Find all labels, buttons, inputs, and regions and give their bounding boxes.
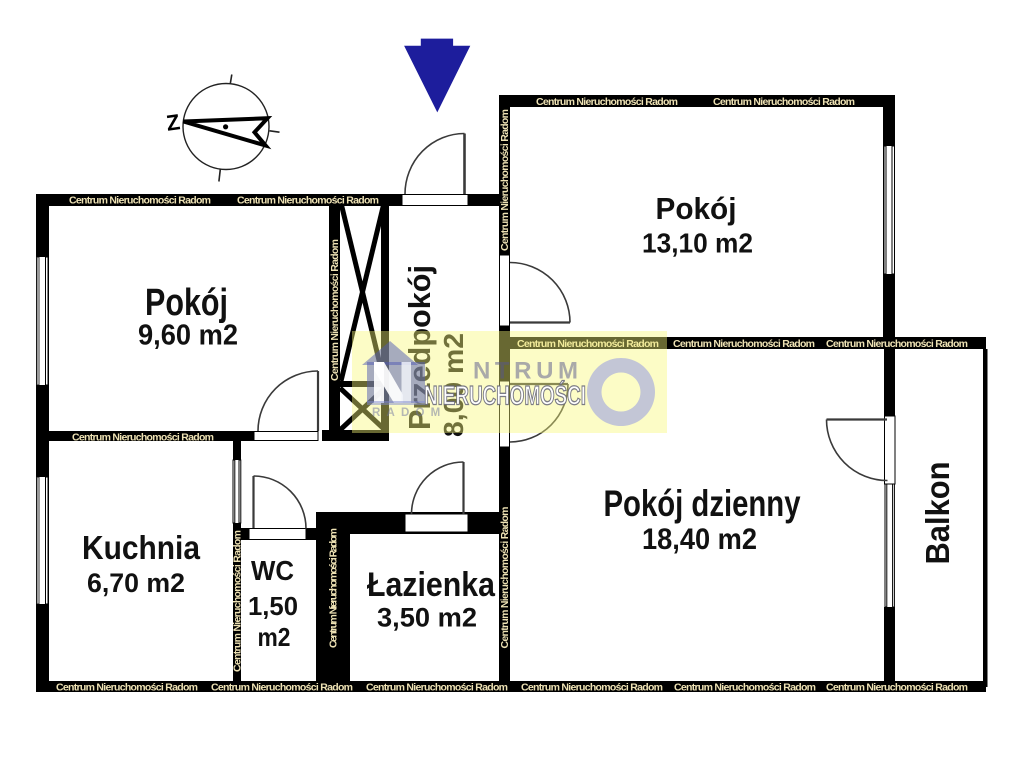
- svg-text:Centrum Nieruchomości Radom: Centrum Nieruchomości Radom: [211, 682, 353, 694]
- svg-text:13,10 m2: 13,10 m2: [642, 228, 753, 259]
- svg-text:Centrum Nieruchomości Radom: Centrum Nieruchomości Radom: [328, 528, 340, 648]
- svg-text:18,40 m2: 18,40 m2: [642, 523, 757, 556]
- svg-text:Centrum Nieruchomości Radom: Centrum Nieruchomości Radom: [237, 195, 379, 207]
- svg-text:Centrum Nieruchomości Radom: Centrum Nieruchomości Radom: [826, 682, 968, 694]
- svg-text:Centrum Nieruchomości Radom: Centrum Nieruchomości Radom: [713, 96, 855, 108]
- svg-text:m2: m2: [258, 622, 291, 652]
- svg-text:NIERUCHOMOŚCI: NIERUCHOMOŚCI: [424, 380, 586, 411]
- svg-text:Balkon: Balkon: [919, 462, 956, 565]
- svg-text:Łazienka: Łazienka: [367, 566, 496, 604]
- svg-text:Centrum Nieruchomości Radom: Centrum Nieruchomości Radom: [329, 239, 341, 381]
- svg-text:9,60 m2: 9,60 m2: [138, 320, 238, 352]
- svg-text:Centrum Nieruchomości Radom: Centrum Nieruchomości Radom: [499, 507, 511, 649]
- svg-text:Centrum Nieruchomości Radom: Centrum Nieruchomości Radom: [69, 195, 211, 207]
- svg-text:Centrum Nieruchomości Radom: Centrum Nieruchomości Radom: [72, 431, 214, 443]
- svg-text:Centrum Nieruchomości Radom: Centrum Nieruchomości Radom: [56, 682, 198, 694]
- svg-text:Pokój: Pokój: [145, 282, 228, 324]
- svg-text:Centrum Nieruchomości Radom: Centrum Nieruchomości Radom: [366, 682, 508, 694]
- svg-text:Centrum Nieruchomości Radom: Centrum Nieruchomości Radom: [826, 338, 968, 350]
- svg-text:Centrum Nieruchomości Radom: Centrum Nieruchomości Radom: [673, 338, 815, 350]
- svg-text:Centrum Nieruchomości Radom: Centrum Nieruchomości Radom: [521, 682, 663, 694]
- svg-text:WC: WC: [251, 555, 294, 586]
- svg-text:1,50: 1,50: [248, 591, 298, 621]
- svg-text:6,70 m2: 6,70 m2: [87, 568, 185, 598]
- svg-text:Centrum Nieruchomości Radom: Centrum Nieruchomości Radom: [499, 109, 511, 251]
- svg-text:Centrum Nieruchomości Radom: Centrum Nieruchomości Radom: [232, 530, 244, 672]
- svg-text:Centrum Nieruchomości Radom: Centrum Nieruchomości Radom: [536, 96, 678, 108]
- svg-text:Kuchnia: Kuchnia: [82, 529, 201, 566]
- svg-text:3,50 m2: 3,50 m2: [377, 603, 477, 633]
- svg-text:Centrum Nieruchomości Radom: Centrum Nieruchomości Radom: [674, 682, 816, 694]
- svg-text:RADOM: RADOM: [372, 407, 446, 419]
- svg-text:Pokój: Pokój: [656, 191, 737, 226]
- svg-text:Pokój dzienny: Pokój dzienny: [604, 483, 801, 524]
